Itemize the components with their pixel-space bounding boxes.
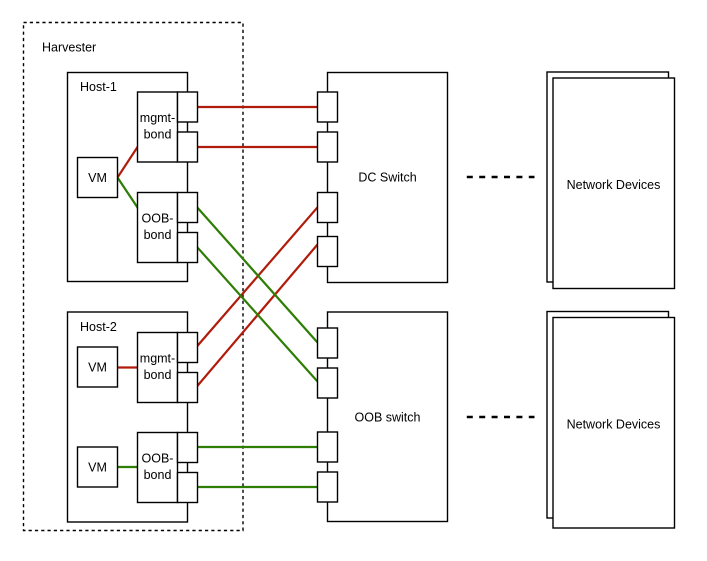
svg-text:Host-2: Host-2	[80, 320, 117, 334]
svg-text:bond: bond	[144, 228, 172, 242]
svg-text:bond: bond	[144, 368, 172, 382]
svg-text:VM: VM	[88, 361, 107, 375]
svg-text:mgmt-: mgmt-	[140, 352, 175, 366]
svg-text:OOB switch: OOB switch	[355, 411, 421, 425]
svg-text:VM: VM	[88, 461, 107, 475]
svg-text:VM: VM	[88, 171, 107, 185]
svg-text:OOB-: OOB-	[142, 452, 174, 466]
svg-text:Host-1: Host-1	[80, 80, 117, 94]
svg-text:bond: bond	[144, 127, 172, 141]
svg-text:mgmt-: mgmt-	[140, 111, 175, 125]
svg-text:bond: bond	[144, 468, 172, 482]
svg-text:Network Devices: Network Devices	[567, 417, 661, 431]
svg-text:Harvester: Harvester	[42, 41, 96, 55]
svg-text:OOB-: OOB-	[142, 212, 174, 226]
svg-text:Network Devices: Network Devices	[567, 178, 661, 192]
svg-text:DC Switch: DC Switch	[358, 171, 416, 185]
